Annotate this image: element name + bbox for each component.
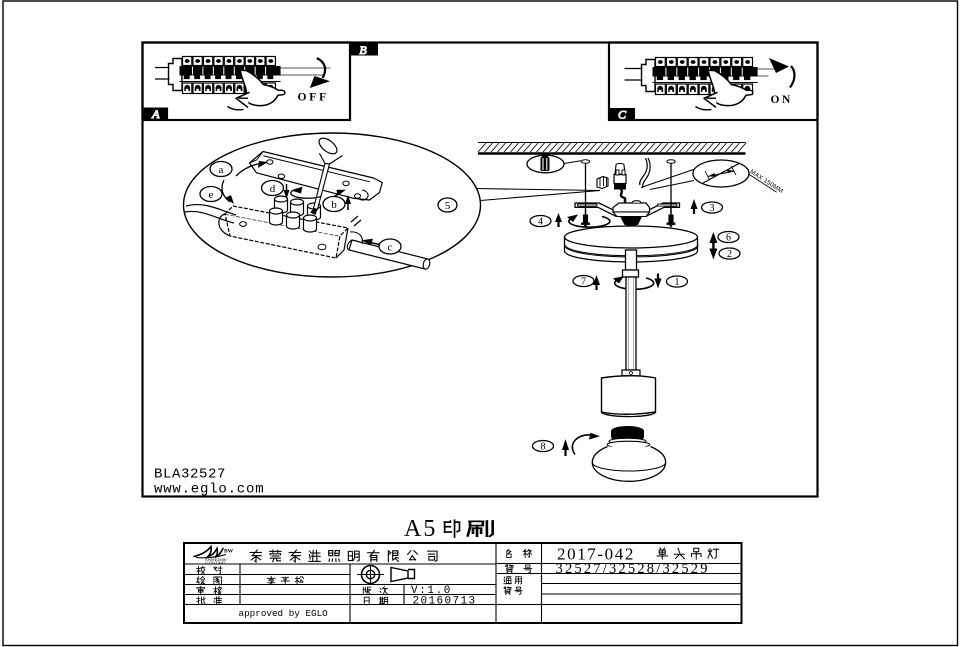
svg-text:7: 7	[581, 277, 586, 288]
svg-text:OFF: OFF	[298, 92, 329, 104]
svg-text:BLA32527: BLA32527	[154, 467, 226, 483]
svg-text:approved by EGLO: approved by EGLO	[239, 608, 329, 619]
svg-text:B: B	[359, 43, 367, 57]
svg-text:BW: BW	[224, 549, 234, 555]
svg-text:a: a	[219, 164, 224, 176]
svg-text:e: e	[209, 189, 214, 201]
svg-text:A: A	[151, 107, 160, 121]
svg-text:32527/32528/32529: 32527/32528/32529	[556, 561, 710, 577]
svg-text:1: 1	[675, 277, 680, 288]
svg-text:www.eglo.com: www.eglo.com	[154, 482, 264, 498]
svg-text:LIGHTING: LIGHTING	[205, 561, 225, 565]
svg-text:ON: ON	[771, 94, 793, 106]
svg-text:A5: A5	[404, 516, 437, 542]
svg-text:4: 4	[538, 217, 543, 228]
svg-text:8: 8	[541, 442, 546, 453]
svg-text:6: 6	[726, 233, 731, 244]
svg-text:d: d	[270, 183, 276, 195]
svg-text:20160713: 20160713	[413, 595, 477, 607]
svg-text:2: 2	[727, 249, 732, 260]
svg-text:c: c	[388, 241, 393, 253]
svg-text:b: b	[331, 199, 337, 211]
svg-text:C: C	[618, 107, 627, 121]
svg-text:3: 3	[710, 203, 715, 214]
svg-text:5: 5	[445, 200, 451, 212]
